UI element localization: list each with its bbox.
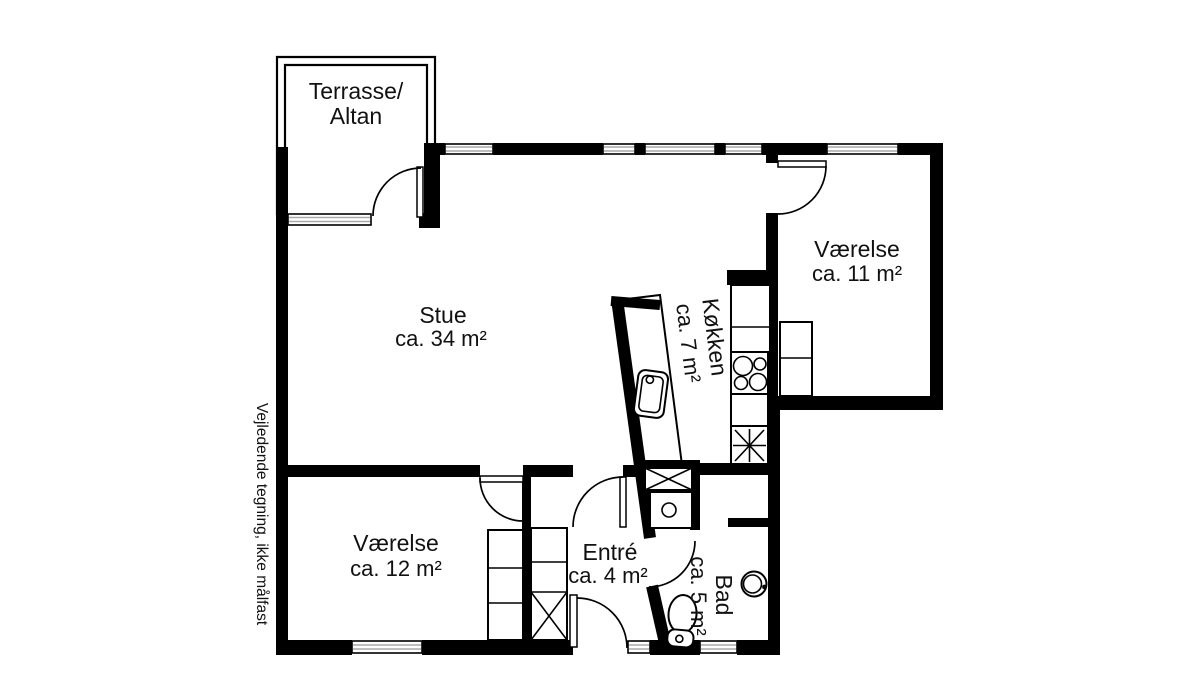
wall <box>523 465 573 477</box>
wall-top <box>493 143 603 155</box>
wall-stub <box>728 518 780 527</box>
window <box>827 144 898 154</box>
cabinet <box>731 394 768 426</box>
wall <box>700 463 780 475</box>
bedroom-right-label: Værelse <box>814 236 900 262</box>
wall <box>765 396 943 410</box>
door-leaf <box>417 167 423 217</box>
sink-tap <box>762 585 767 590</box>
washing-machine <box>650 492 692 528</box>
washing-machine-box <box>650 492 692 528</box>
window <box>445 144 493 154</box>
wall-bottom <box>422 640 573 655</box>
bedroom-left: Værelse ca. 12 m² <box>350 476 523 640</box>
terrace: Terrasse/ Altan <box>276 57 440 228</box>
wall-mullion <box>715 143 725 155</box>
bathroom-area: ca. 5 m² <box>686 556 711 635</box>
bedroom-left-label: Værelse <box>353 530 439 556</box>
cabinet <box>731 285 770 352</box>
bedroom-right: Værelse ca. 11 m² <box>766 143 902 398</box>
entry: Entré ca. 4 m² <box>522 477 648 655</box>
living-room-area: ca. 34 m² <box>395 326 487 351</box>
wall <box>766 143 778 163</box>
bathroom-label: Bad <box>711 575 737 616</box>
entry-wardrobe <box>531 528 567 640</box>
door-arc <box>573 477 623 527</box>
wardrobe-box <box>531 528 567 640</box>
wall <box>727 270 778 285</box>
wall <box>276 465 480 477</box>
disclaimer-text: Vejledende tegning, ikke målfast <box>253 403 270 626</box>
wall-bottom <box>276 640 352 655</box>
bedroom-left-wardrobe <box>488 530 523 640</box>
window <box>288 214 371 225</box>
floor-plan-page: Terrasse/ Altan <box>0 0 1200 700</box>
floor-plan: Terrasse/ Altan <box>0 0 1200 700</box>
tall-cupboard <box>645 468 692 490</box>
entry-label: Entré <box>583 539 638 565</box>
wall-mullion <box>635 143 645 155</box>
refrigerator <box>731 426 768 465</box>
stove <box>731 352 768 394</box>
window <box>700 641 737 653</box>
window <box>603 144 635 154</box>
counter-end-cap <box>611 301 660 305</box>
window <box>725 144 762 154</box>
kitchen-sink <box>633 369 669 419</box>
front-door-arc <box>577 598 627 648</box>
living-room: Stue ca. 34 m² <box>276 302 642 477</box>
door-arc <box>373 168 421 216</box>
utility-niche <box>640 460 700 530</box>
window <box>645 144 715 154</box>
living-room-label: Stue <box>419 302 466 328</box>
wardrobe <box>780 322 812 396</box>
door-arc <box>778 166 826 214</box>
terrace-label: Terrasse/ <box>309 78 404 104</box>
window <box>628 641 650 653</box>
door-leaf <box>480 476 523 482</box>
wardrobe-box <box>780 322 812 396</box>
door-leaf <box>778 161 826 167</box>
terrace-label-line2: Altan <box>330 103 382 129</box>
wall-right <box>930 143 943 410</box>
door-leaf <box>620 477 626 527</box>
bedroom-left-area: ca. 12 m² <box>350 556 442 581</box>
bathroom-sink <box>742 572 767 597</box>
wall-top <box>424 143 445 155</box>
wardrobe-box <box>488 530 523 640</box>
wall-left <box>276 147 288 655</box>
front-door-leaf <box>570 595 577 647</box>
bedroom-right-area: ca. 11 m² <box>812 261 902 286</box>
window <box>352 641 422 653</box>
entry-area: ca. 4 m² <box>568 563 647 588</box>
door-arc <box>480 478 523 521</box>
